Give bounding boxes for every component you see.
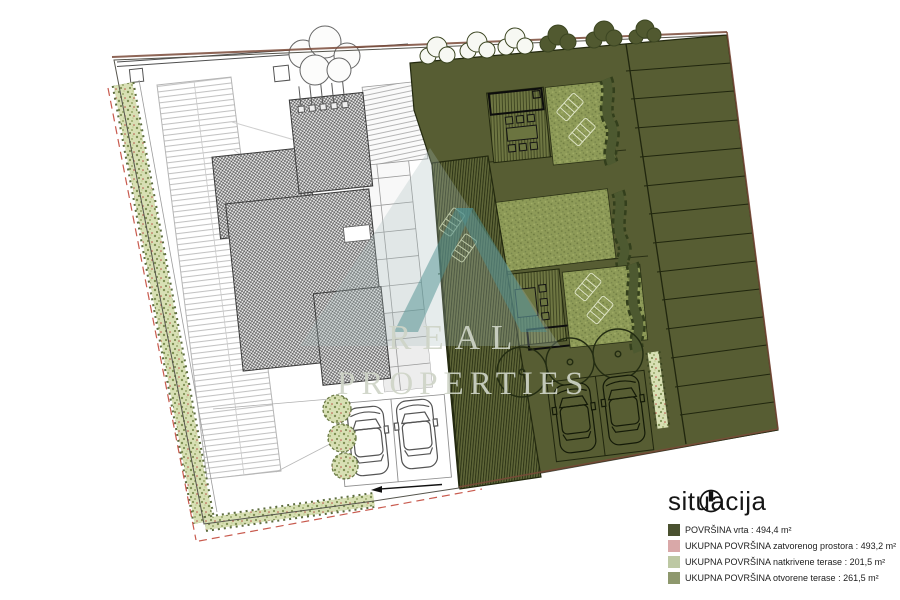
legend: situacija POVRŠINA vrta : 494,4 m² UKUPN… xyxy=(668,486,900,588)
legend-item-garden: POVRŠINA vrta : 494,4 m² xyxy=(668,524,900,536)
color-chip-covered-terrace xyxy=(668,556,680,568)
color-chip-garden xyxy=(668,524,680,536)
color-chip-closed-space xyxy=(668,540,680,552)
dining-set xyxy=(505,114,538,152)
deck-1 xyxy=(487,87,551,163)
legend-item-label: UKUPNA POVRŠINA zatvorenog prostora : 49… xyxy=(685,541,896,551)
shrubs xyxy=(323,395,358,479)
legend-item-open-terrace: UKUPNA POVRŠINA otvorene terase : 261,5 … xyxy=(668,572,900,584)
legend-item-covered-terrace: UKUPNA POVRŠINA natkrivene terase : 201,… xyxy=(668,556,900,568)
legend-items: POVRŠINA vrta : 494,4 m² UKUPNA POVRŠINA… xyxy=(668,524,900,584)
legend-item-closed-space: UKUPNA POVRŠINA zatvorenog prostora : 49… xyxy=(668,540,900,552)
site-plan-page: REAL PROPERTIES situacija POVRŠINA vrta … xyxy=(0,0,900,600)
legend-item-label: POVRŠINA vrta : 494,4 m² xyxy=(685,525,792,535)
shrub-border-2 xyxy=(618,192,625,268)
legend-item-label: UKUPNA POVRŠINA natkrivene terase : 201,… xyxy=(685,557,885,567)
shrub-border-1 xyxy=(606,79,613,164)
roof-window xyxy=(343,225,370,243)
lawn-2 xyxy=(488,189,616,273)
legend-item-label: UKUPNA POVRŠINA otvorene terase : 261,5 … xyxy=(685,573,879,583)
utility-box xyxy=(273,65,289,81)
utility-box xyxy=(129,68,143,82)
color-chip-open-terrace xyxy=(668,572,680,584)
car-white-2 xyxy=(392,398,442,470)
entrance-arrow xyxy=(371,485,442,493)
north-indicator-icon xyxy=(698,488,724,514)
tree-canopy xyxy=(289,26,360,85)
